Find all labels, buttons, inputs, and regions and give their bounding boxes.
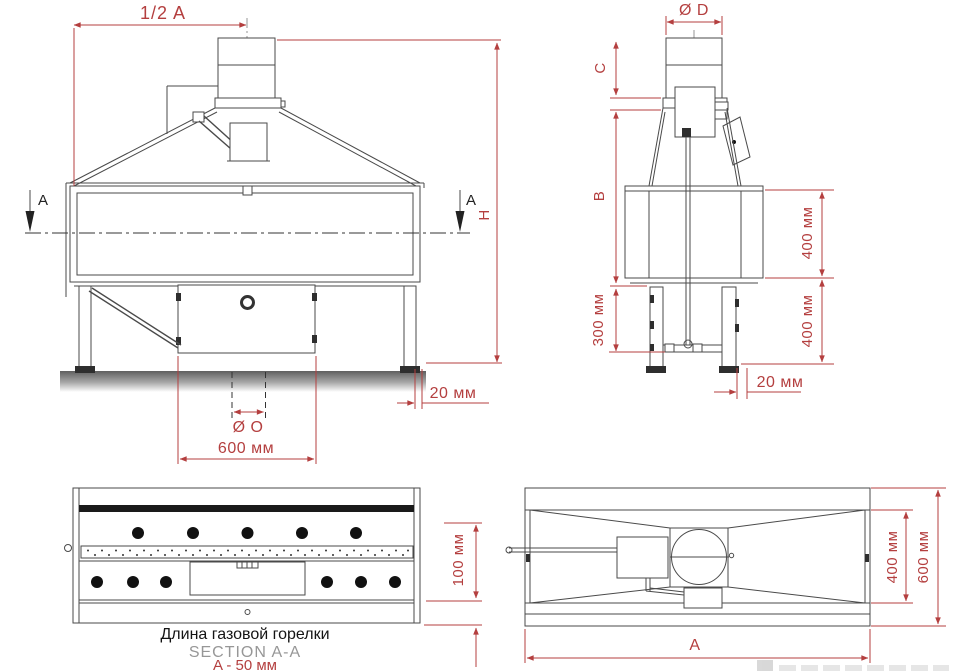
dim-half-a: 1/2 A [140,3,186,23]
dim-400mm-plan: 400 мм [884,531,901,584]
side-leg-back [722,287,736,367]
foot-left [75,366,95,373]
front-chimney [167,18,285,134]
perforated-strip [65,545,414,559]
foot-right [400,366,420,373]
fan-box [675,87,715,137]
front-firebox [70,186,420,286]
section-label-right: A [466,192,476,209]
watermark [757,660,949,671]
caption-a-minus-50: A - 50 мм [213,657,277,671]
front-leg-right [404,286,416,367]
dim-c: C [592,62,609,73]
dim-20mm-front: 20 мм [430,385,477,402]
dim-b: B [591,191,608,202]
hood-bracket [193,112,204,122]
hood-box [230,123,267,161]
gas-burner-box [190,562,305,595]
side-body [625,137,763,348]
dim-600mm: 600 мм [218,440,274,457]
cabinet-knob [242,297,254,309]
motor-box-plan [617,537,668,578]
dim-300mm: 300 мм [590,294,607,347]
dim-a: A [689,637,700,654]
section-view: 100 мм Длина газовой горелки SECTION A-A… [65,488,483,671]
side-view: Ø D C B 300 мм 400 мм 400 мм 20 мм [590,2,834,399]
front-view: A A 1/2 A H 20 мм Ø O 600 мм [25,3,502,464]
front-leg-left [79,286,91,367]
section-arrow-right [456,211,465,232]
firebox-notch [243,186,252,195]
gas-grill-drawing: A A 1/2 A H 20 мм Ø O 600 мм [0,0,960,671]
grill-bar [79,505,414,512]
dim-20mm-side: 20 мм [757,374,804,391]
dim-400mm-bottom: 400 мм [799,295,816,348]
technical-drawing-page: A A 1/2 A H 20 мм Ø O 600 мм [0,0,960,671]
dim-100mm: 100 мм [450,534,467,587]
dim-400mm-top: 400 мм [799,207,816,260]
section-label-left: A [38,192,48,209]
dim-h: H [476,209,493,220]
burner-inlet-plan [684,588,722,608]
front-base [75,285,420,373]
gas-inlet-nipple [65,545,72,552]
top-view: A 400 мм 600 мм [506,488,946,663]
side-base [646,287,739,373]
dim-dia-d: Ø D [679,2,709,19]
section-dimensions: 100 мм [424,523,482,667]
side-chimney [663,30,750,165]
ground-shading [60,371,426,392]
section-arrow-left [26,211,35,232]
dim-600mm-plan: 600 мм [915,531,932,584]
caption-burner-length: Длина газовой горелки [160,626,329,643]
dim-dia-o: Ø O [233,419,264,436]
section-captions: Длина газовой горелки SECTION A-A A - 50… [160,626,329,671]
